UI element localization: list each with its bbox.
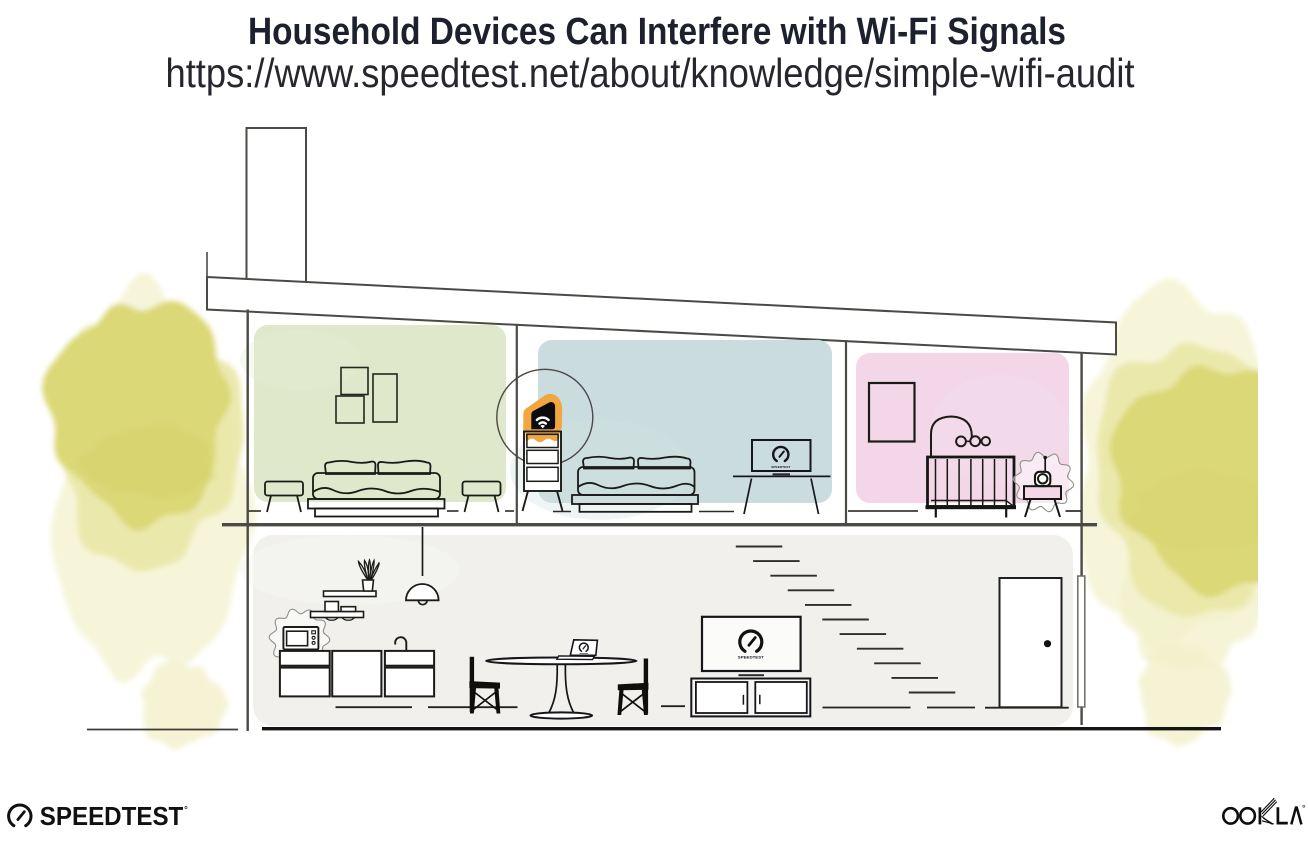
svg-text:SPEEDTEST: SPEEDTEST: [40, 803, 184, 831]
svg-text:https://www.speedtest.net/abou: https://www.speedtest.net/about/knowledg…: [166, 50, 1136, 96]
svg-text:Household Devices Can Interfer: Household Devices Can Interfere with Wi-…: [248, 11, 1066, 53]
svg-text:SPEEDTEST: SPEEDTEST: [738, 656, 765, 660]
svg-text:SPEEDTEST: SPEEDTEST: [771, 465, 790, 469]
